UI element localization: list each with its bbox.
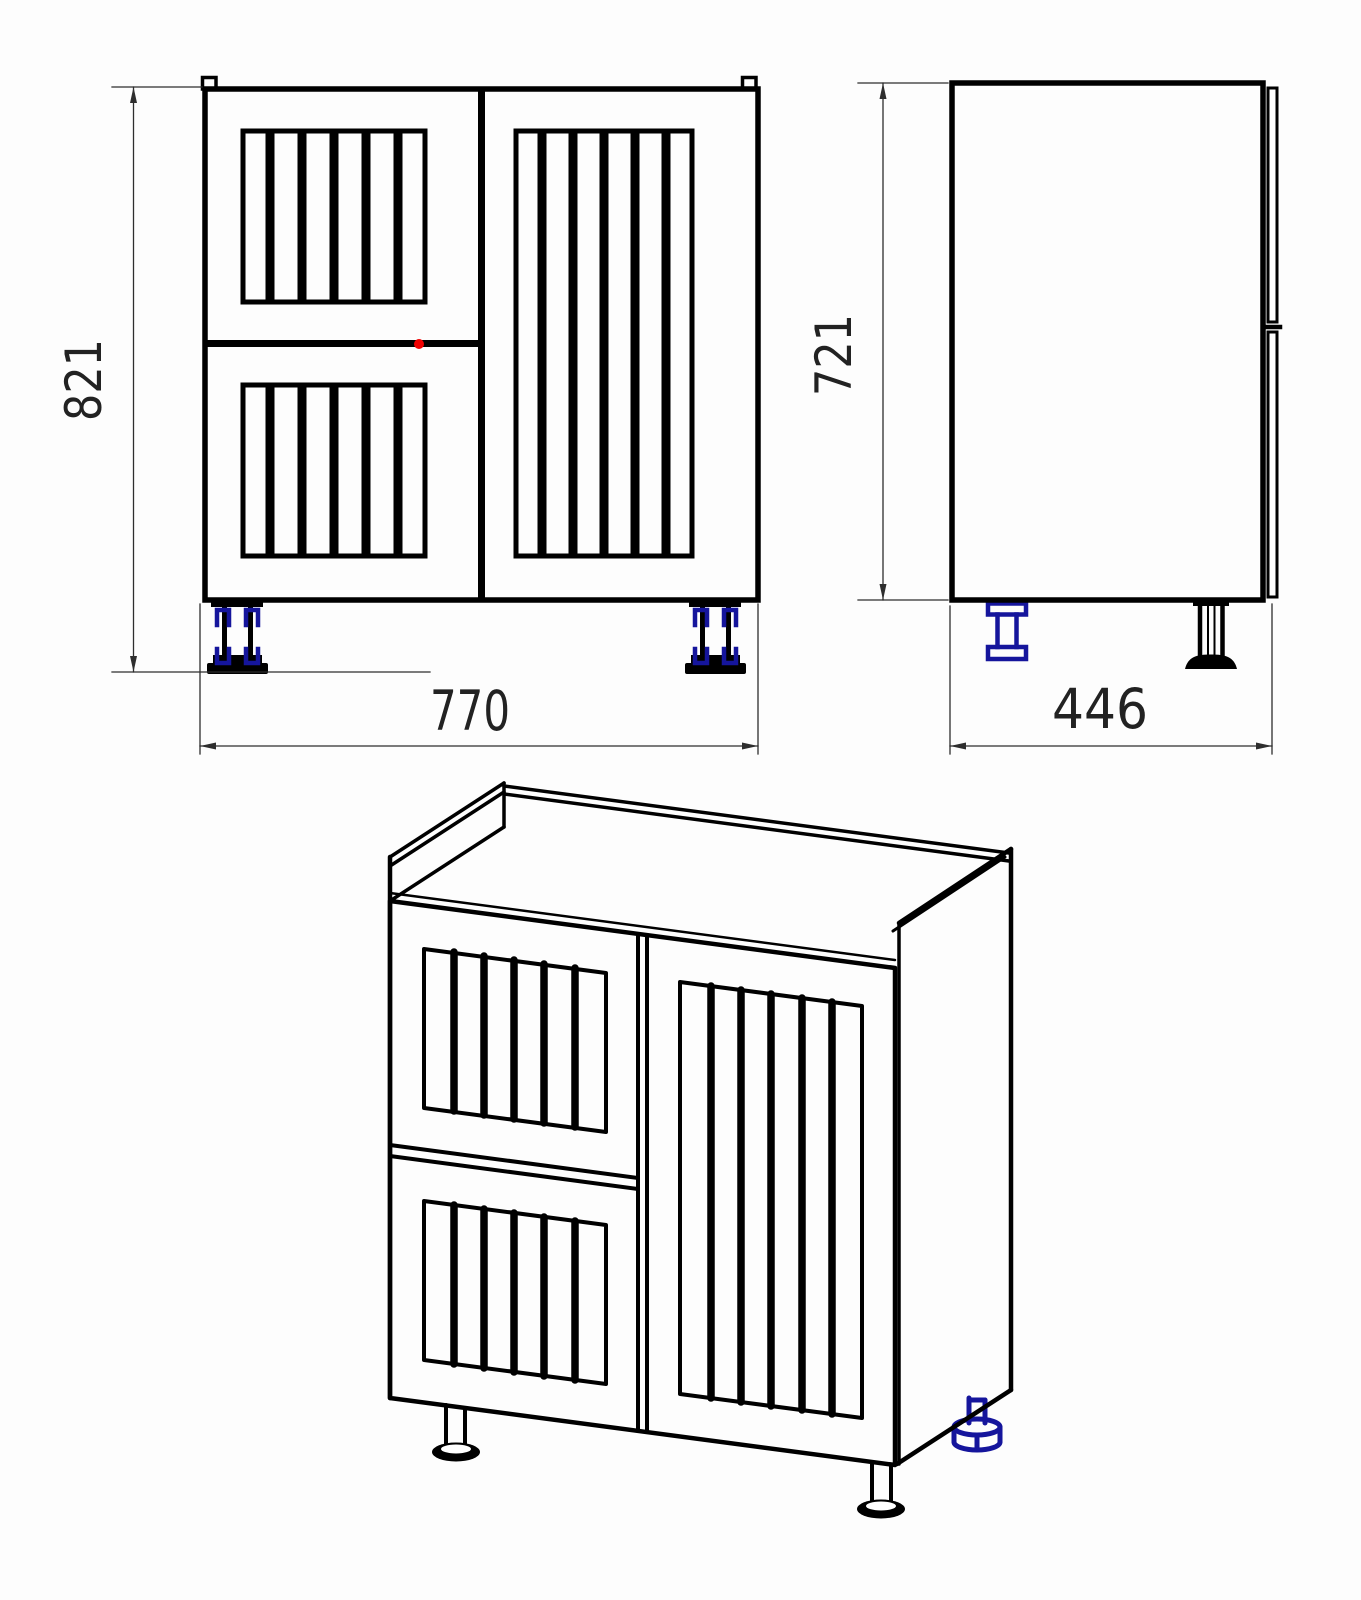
dimension-front-width: 770 [200,604,758,754]
front-view-left-leg [207,600,268,674]
side-view-body [952,83,1280,600]
front-view-left-top-tab [203,78,217,90]
side-view-rear-leg [1185,600,1237,669]
side-view-adjustable-foot [988,604,1026,660]
front-view-top-drawer-panel [243,131,425,302]
front-view-right-top-tab [743,78,757,90]
dim-label-770: 770 [430,679,510,743]
side-view: 721 446 [805,83,1280,754]
iso-right-side-panel [893,849,1011,1464]
dimension-side-height: 721 [805,83,948,600]
dim-label-721: 721 [805,314,863,396]
iso-back-panel-top-edge [504,786,1009,861]
technical-drawing-page: 821 770 [0,0,1361,1600]
front-view-bottom-drawer-panel [243,385,425,556]
iso-door-panel [680,982,862,1418]
iso-left-side-panel [390,783,504,901]
front-view-carcass [203,78,759,601]
iso-front-left-leg [432,1405,480,1462]
iso-top-drawer-panel [424,949,606,1132]
cabinet-drawing-svg: 821 770 [0,0,1361,1600]
front-view-door-panel [516,131,692,556]
dim-label-821: 821 [55,339,113,421]
red-marker-dot [414,339,424,349]
iso-front-face [390,857,895,1465]
iso-front-right-leg [857,1462,905,1519]
iso-bottom-drawer-panel [424,1201,606,1384]
isometric-view [390,783,1011,1519]
front-view: 821 770 [55,78,758,755]
side-view-front-strip-lower [1268,332,1277,597]
front-view-right-leg [685,600,746,674]
dim-label-446: 446 [1052,677,1148,741]
side-view-front-strip-upper [1268,88,1277,322]
